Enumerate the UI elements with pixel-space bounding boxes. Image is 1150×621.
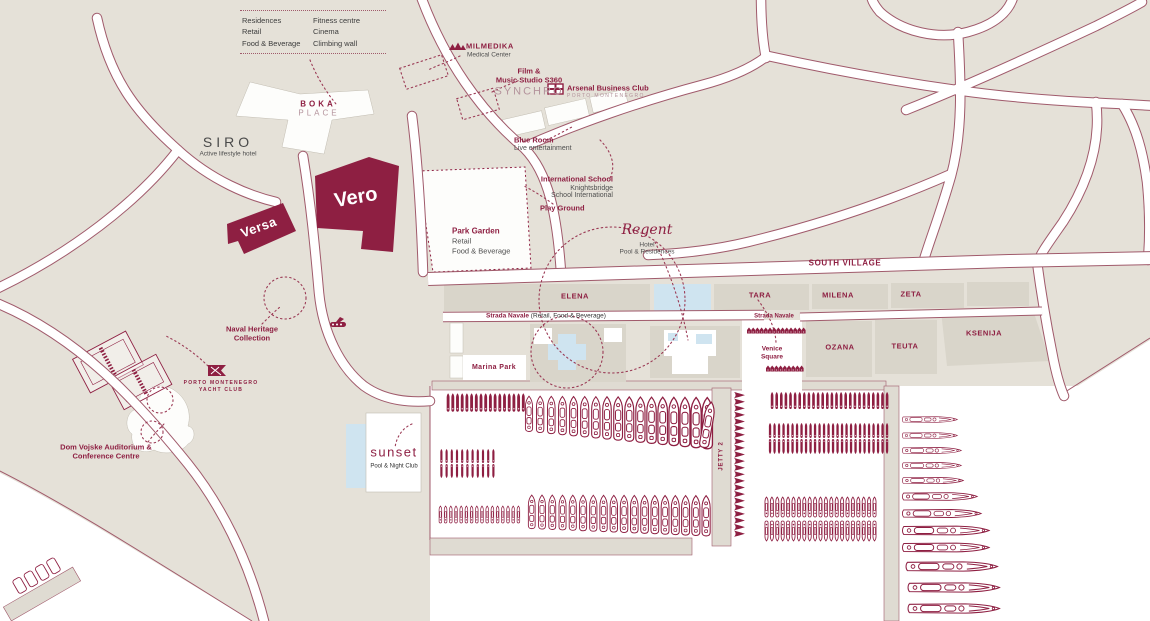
- legend-climbing: Climbing wall: [313, 38, 384, 49]
- naval-heritage-label-2: Collection: [234, 335, 270, 344]
- vero-label[interactable]: Vero: [333, 183, 380, 213]
- amenities-legend: Residences Retail Food & Beverage Fitnes…: [240, 10, 386, 54]
- play-ground-label[interactable]: Play Ground: [540, 205, 585, 214]
- street-zeta[interactable]: ZETA: [900, 291, 921, 300]
- arsenal-club-label[interactable]: Arsenal Business Club: [567, 85, 649, 94]
- labels-layer: Residences Retail Food & Beverage Fitnes…: [0, 0, 1150, 621]
- park-garden-sub1: Retail: [452, 238, 471, 247]
- film-studio-label-2: Music Studio S360: [496, 77, 562, 86]
- strada-navale-right-label[interactable]: Strada Navale: [754, 314, 794, 321]
- marina-park-label[interactable]: Marina Park: [472, 364, 516, 372]
- strada-navale-rest: (Retail, Food & Beverage): [529, 312, 606, 319]
- versa-label[interactable]: Versa: [239, 215, 279, 242]
- jetty-2-label[interactable]: JETTY 2: [719, 441, 726, 470]
- siro-label[interactable]: SIRO: [203, 134, 253, 150]
- park-garden-sub2: Food & Beverage: [452, 248, 510, 257]
- siro-sub: Active lifestyle hotel: [199, 150, 256, 157]
- yacht-club-label[interactable]: PORTO MONTENEGRO: [184, 381, 259, 387]
- blue-room-sub: Live entertainment: [514, 145, 572, 153]
- legend-column-2: Fitness centre Cinema Climbing wall: [313, 15, 384, 49]
- venice-square-label[interactable]: Venice: [762, 345, 783, 352]
- legend-residences: Residences: [242, 15, 313, 26]
- arsenal-club-sub: PORTO MONTENEGRO: [567, 94, 645, 100]
- south-village-label[interactable]: SOUTH VILLAGE: [809, 258, 882, 267]
- venice-square-label-2: Square: [761, 353, 783, 360]
- street-elena[interactable]: ELENA: [561, 293, 589, 302]
- street-tara[interactable]: TARA: [749, 292, 771, 301]
- milmedika-sub: Medical Center: [467, 51, 511, 58]
- legend-fitness: Fitness centre: [313, 15, 384, 26]
- street-milena[interactable]: MILENA: [822, 292, 854, 301]
- strada-navale-bold: Strada Navale: [486, 312, 529, 319]
- street-ksenija[interactable]: KSENIJA: [966, 330, 1002, 339]
- legend-food-beverage: Food & Beverage: [242, 38, 313, 49]
- legend-cinema: Cinema: [313, 26, 384, 37]
- yacht-club-label-2: YACHT CLUB: [199, 388, 243, 394]
- regent-sub2: Pool & Residences: [620, 248, 675, 255]
- street-teuta[interactable]: TEUTA: [892, 343, 919, 352]
- boka-place-label[interactable]: BOKA: [300, 99, 336, 108]
- synchro-logo: SYNCHRO: [494, 86, 563, 99]
- international-school-sub2: School International: [551, 192, 613, 200]
- sunset-logo[interactable]: sunset: [370, 446, 417, 461]
- milmedika-label[interactable]: MILMEDIKA: [466, 43, 514, 52]
- park-garden-label[interactable]: Park Garden: [452, 226, 500, 235]
- regent-hotel-label[interactable]: Regent: [622, 222, 673, 238]
- strada-navale-left-label[interactable]: Strada Navale (Retail, Food & Beverage): [486, 312, 606, 319]
- dom-vojske-label-2: Conference Centre: [72, 453, 139, 462]
- porto-montenegro-resort-map: Residences Retail Food & Beverage Fitnes…: [0, 0, 1150, 621]
- legend-retail: Retail: [242, 26, 313, 37]
- international-school-label[interactable]: International School: [541, 176, 613, 185]
- legend-column-1: Residences Retail Food & Beverage: [242, 15, 313, 49]
- sunset-sub: Pool & Night Club: [370, 464, 417, 471]
- street-ozana[interactable]: OZANA: [825, 344, 854, 353]
- boka-place-label-2: PLACE: [298, 108, 339, 117]
